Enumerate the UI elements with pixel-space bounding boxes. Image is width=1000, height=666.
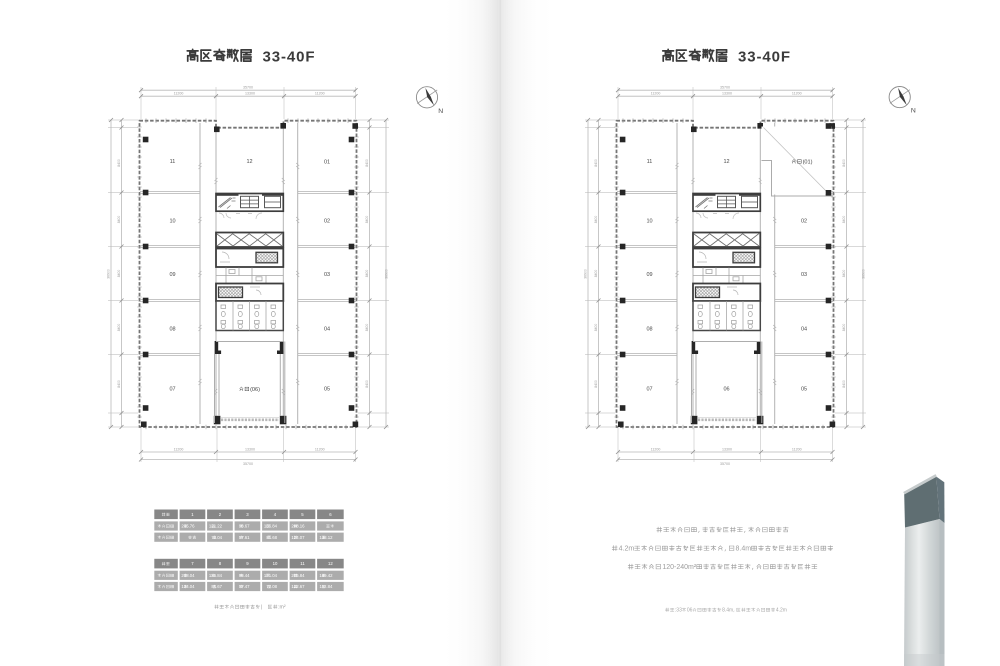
svg-text:06: 06: [723, 386, 729, 392]
svg-text:81.68: 81.68: [266, 535, 277, 540]
svg-text:13300: 13300: [245, 448, 255, 452]
svg-text:8400: 8400: [117, 380, 121, 388]
svg-text:36900: 36900: [862, 269, 866, 279]
svg-text:112.84: 112.84: [320, 584, 333, 589]
svg-text:36900: 36900: [385, 269, 389, 279]
svg-text:04: 04: [801, 326, 807, 332]
svg-text::33: :33: [675, 608, 682, 614]
svg-text:8400: 8400: [117, 159, 121, 167]
svg-text:8400: 8400: [594, 380, 598, 388]
svg-text:11200: 11200: [792, 92, 802, 96]
svg-text:10: 10: [273, 561, 278, 566]
svg-text:121.04: 121.04: [264, 573, 278, 578]
svg-text:33-40F: 33-40F: [263, 49, 316, 66]
svg-text:124.07: 124.07: [291, 535, 305, 540]
svg-text:208.16: 208.16: [291, 524, 305, 529]
svg-text:07: 07: [646, 386, 652, 392]
svg-text:02: 02: [801, 218, 807, 224]
svg-text:208.04: 208.04: [181, 573, 195, 578]
svg-text::m²: :m²: [278, 605, 286, 611]
svg-text:121.22: 121.22: [209, 524, 223, 529]
svg-text:189.42: 189.42: [319, 573, 333, 578]
svg-text:8400: 8400: [594, 216, 598, 224]
svg-text:205.84: 205.84: [291, 573, 305, 578]
svg-text:8400: 8400: [365, 324, 369, 332]
svg-text:11200: 11200: [315, 448, 325, 452]
svg-text:06: 06: [687, 608, 693, 614]
svg-text:07: 07: [169, 386, 175, 392]
svg-text:8400: 8400: [842, 159, 846, 167]
svg-text:09: 09: [646, 272, 652, 278]
svg-text:11200: 11200: [174, 92, 184, 96]
svg-text:36900: 36900: [107, 269, 111, 279]
svg-text:8400: 8400: [117, 324, 121, 332]
svg-text:8400: 8400: [594, 324, 598, 332]
svg-text:13300: 13300: [722, 448, 732, 452]
svg-text:08: 08: [646, 326, 652, 332]
svg-text:13300: 13300: [722, 92, 732, 96]
svg-text:03: 03: [801, 272, 807, 278]
svg-text:02: 02: [324, 218, 330, 224]
svg-text:4.2m: 4.2m: [619, 546, 635, 553]
svg-text:35700: 35700: [720, 462, 730, 466]
svg-text:09: 09: [169, 272, 175, 278]
svg-text:8400: 8400: [842, 270, 846, 278]
svg-text:|: |: [261, 605, 262, 611]
svg-text:11200: 11200: [651, 448, 661, 452]
svg-text:12: 12: [246, 159, 252, 165]
svg-text:36900: 36900: [584, 269, 588, 279]
svg-text:11200: 11200: [792, 448, 802, 452]
svg-text:01: 01: [324, 159, 330, 165]
svg-text:72.04: 72.04: [211, 535, 222, 540]
svg-text:138.12: 138.12: [319, 535, 333, 540]
svg-text:35700: 35700: [243, 462, 253, 466]
svg-text:35700: 35700: [720, 86, 730, 90]
svg-text:57.47: 57.47: [239, 584, 250, 589]
svg-text:N: N: [911, 108, 916, 115]
svg-text:8400: 8400: [594, 159, 598, 167]
svg-text:122.67: 122.67: [291, 584, 305, 589]
svg-text:8400: 8400: [842, 324, 846, 332]
svg-text:05: 05: [324, 386, 330, 392]
svg-text:136.84: 136.84: [209, 573, 223, 578]
svg-text:08: 08: [169, 326, 175, 332]
svg-text:35700: 35700: [243, 86, 253, 90]
svg-text:8400: 8400: [117, 270, 121, 278]
svg-text:8400: 8400: [594, 270, 598, 278]
svg-text:72.08: 72.08: [266, 584, 277, 589]
svg-text:8400: 8400: [365, 216, 369, 224]
svg-text:11200: 11200: [315, 92, 325, 96]
svg-text:33-40F: 33-40F: [738, 49, 791, 66]
svg-text:81.67: 81.67: [211, 584, 222, 589]
svg-text:03: 03: [324, 272, 330, 278]
svg-text:N: N: [438, 108, 443, 115]
svg-text:12: 12: [328, 561, 333, 566]
svg-text:11: 11: [170, 159, 176, 165]
svg-text:10: 10: [646, 218, 652, 224]
svg-text:11200: 11200: [651, 92, 661, 96]
svg-text:8400: 8400: [842, 216, 846, 224]
svg-text:96.44: 96.44: [239, 573, 250, 578]
svg-text:8.4m: 8.4m: [722, 608, 733, 614]
svg-text:11: 11: [647, 159, 653, 165]
svg-text:05: 05: [801, 386, 807, 392]
svg-text:12: 12: [723, 159, 729, 165]
svg-text:(06): (06): [250, 387, 260, 393]
svg-text:136.84: 136.84: [264, 524, 278, 529]
svg-text:8400: 8400: [365, 270, 369, 278]
svg-text:8400: 8400: [117, 216, 121, 224]
svg-text:120-240m²: 120-240m²: [662, 564, 697, 571]
svg-text:04: 04: [324, 326, 330, 332]
svg-text:(01): (01): [803, 159, 813, 165]
svg-text:96.67: 96.67: [239, 524, 250, 529]
svg-text:57.61: 57.61: [239, 535, 250, 540]
svg-text:13300: 13300: [245, 92, 255, 96]
svg-text:8400: 8400: [365, 380, 369, 388]
svg-text:8400: 8400: [842, 380, 846, 388]
svg-text:11: 11: [300, 561, 305, 566]
svg-text:11200: 11200: [174, 448, 184, 452]
svg-text:124.04: 124.04: [181, 584, 195, 589]
svg-text:8.4m: 8.4m: [736, 546, 752, 553]
svg-text:205.76: 205.76: [181, 524, 195, 529]
svg-text:8400: 8400: [365, 159, 369, 167]
svg-text:10: 10: [169, 218, 175, 224]
svg-text:4.2m: 4.2m: [776, 608, 787, 614]
